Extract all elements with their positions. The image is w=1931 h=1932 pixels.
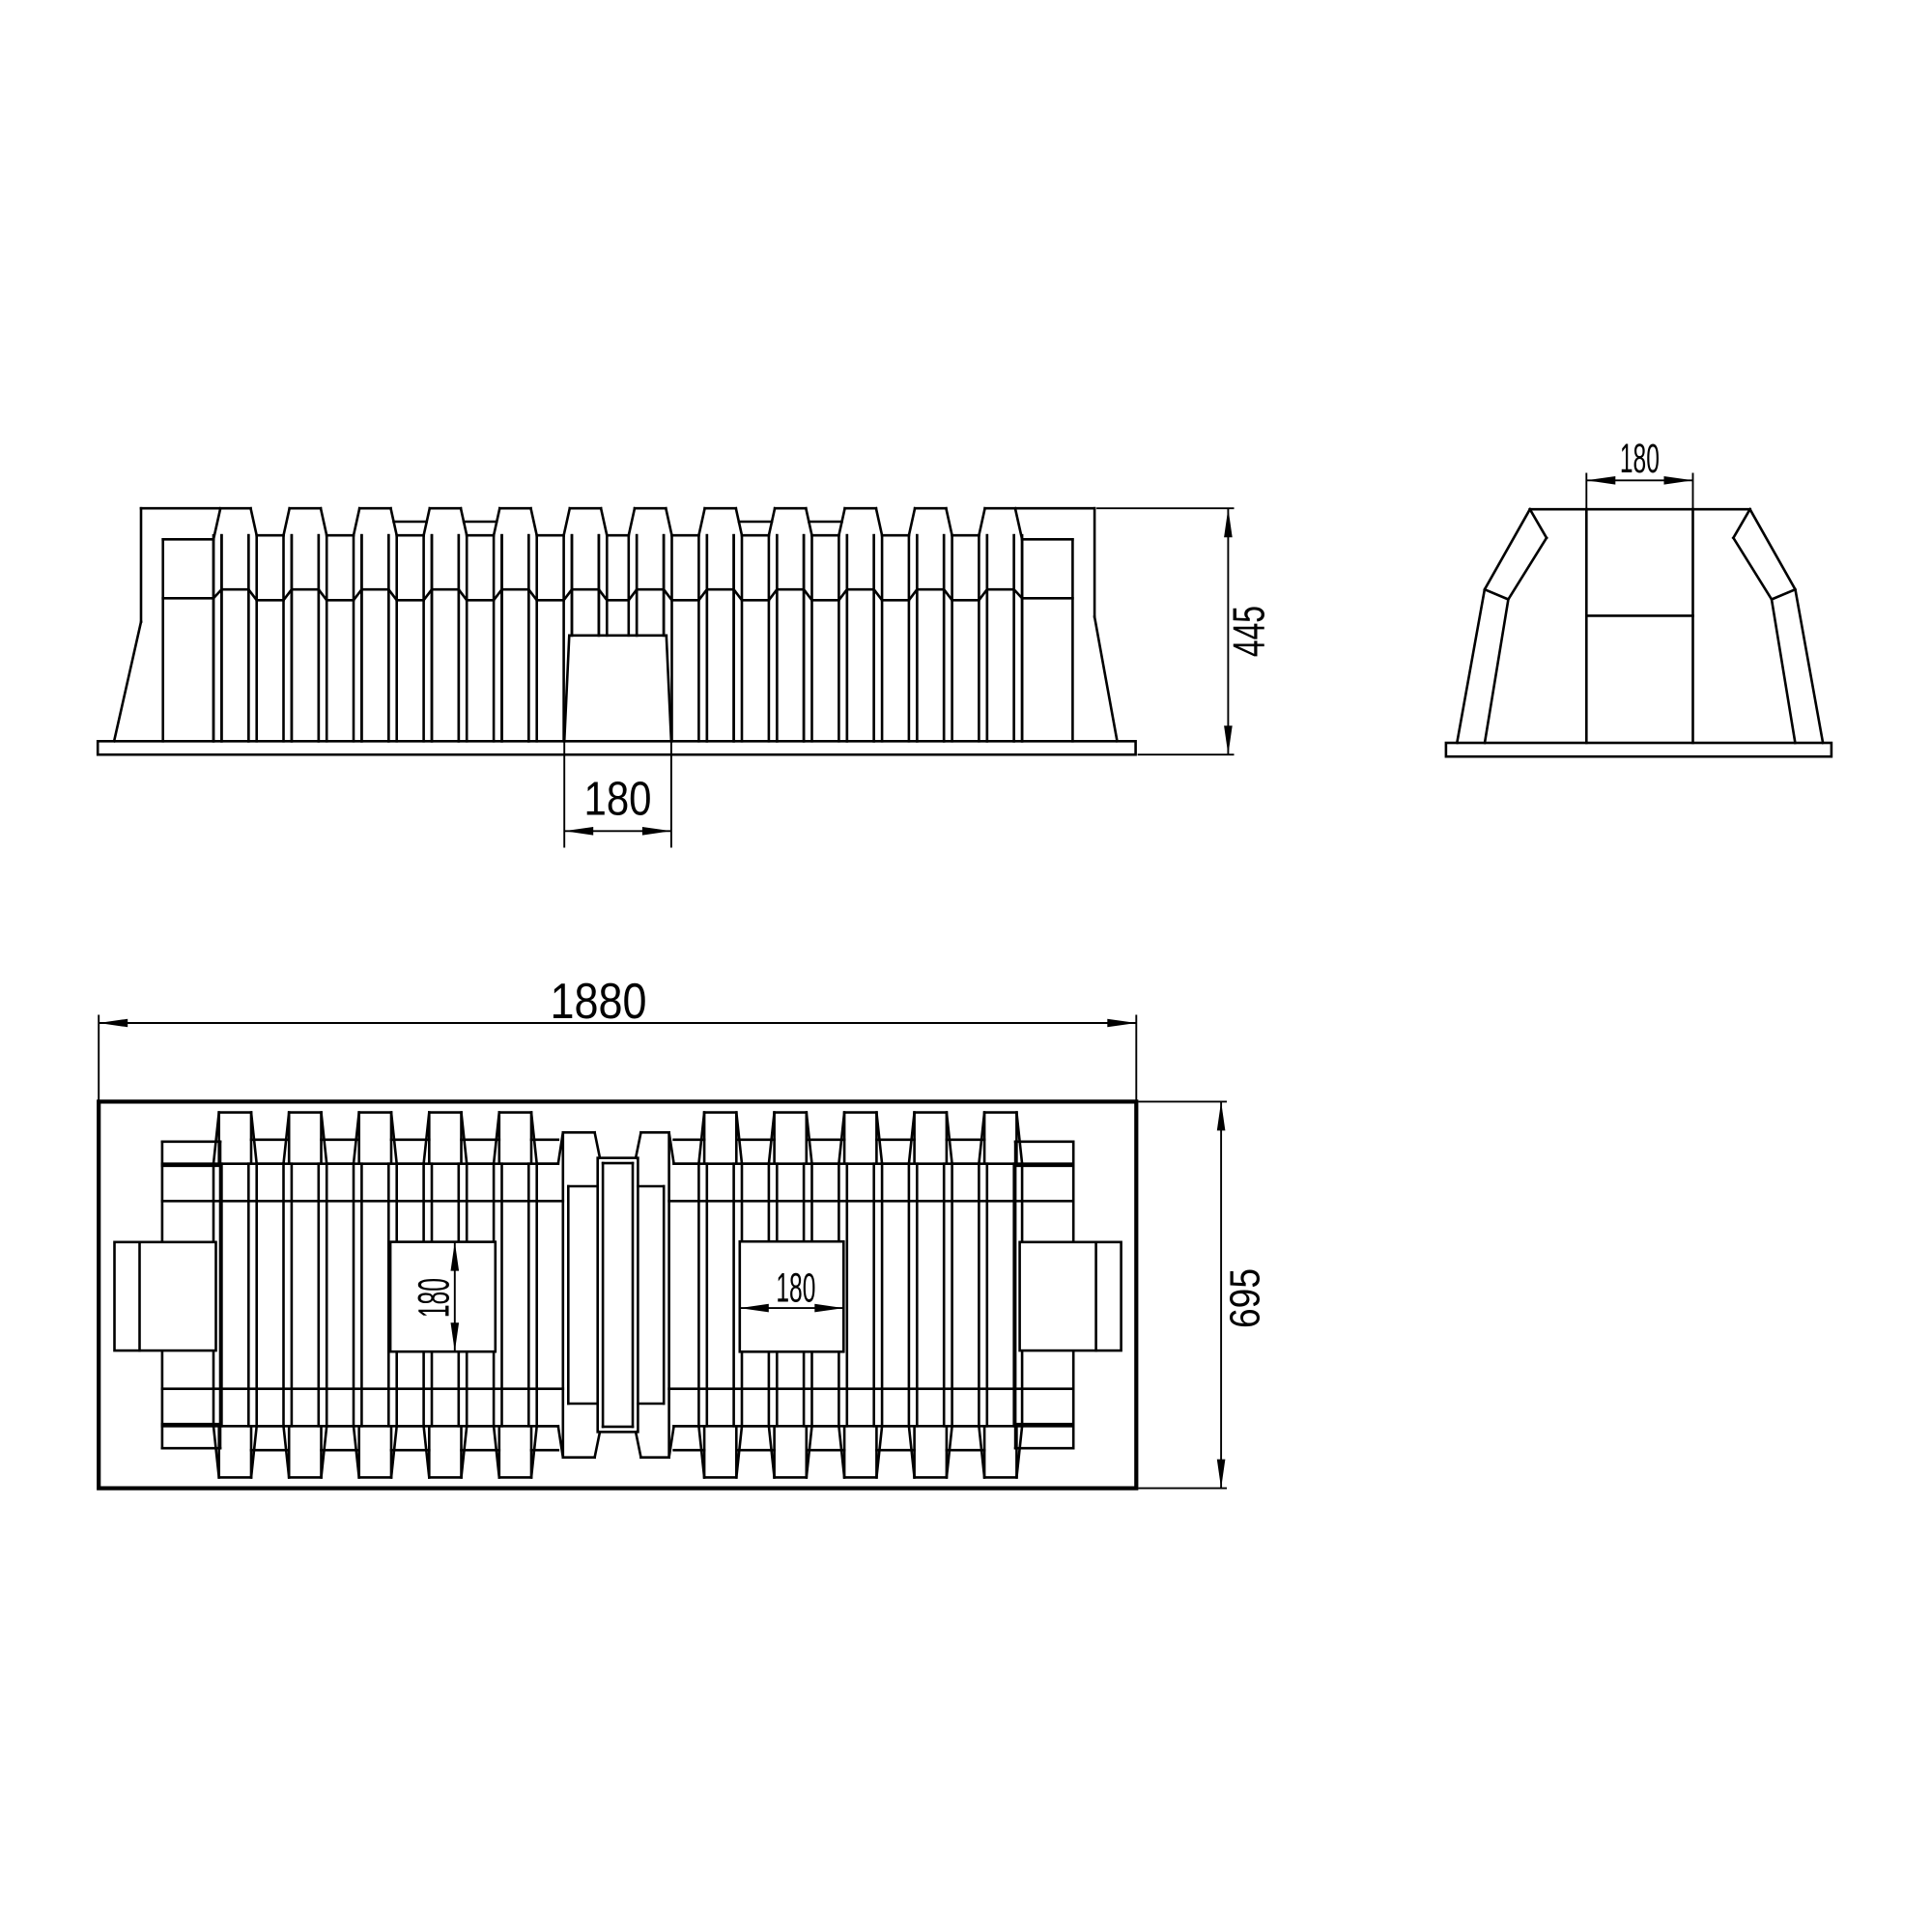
svg-text:180: 180	[776, 1264, 815, 1311]
svg-text:1880: 1880	[551, 974, 647, 1030]
svg-text:180: 180	[410, 1278, 459, 1318]
svg-text:180: 180	[1620, 436, 1660, 482]
svg-text:180: 180	[584, 773, 652, 825]
svg-text:695: 695	[1222, 1268, 1269, 1328]
svg-text:445: 445	[1223, 606, 1273, 657]
